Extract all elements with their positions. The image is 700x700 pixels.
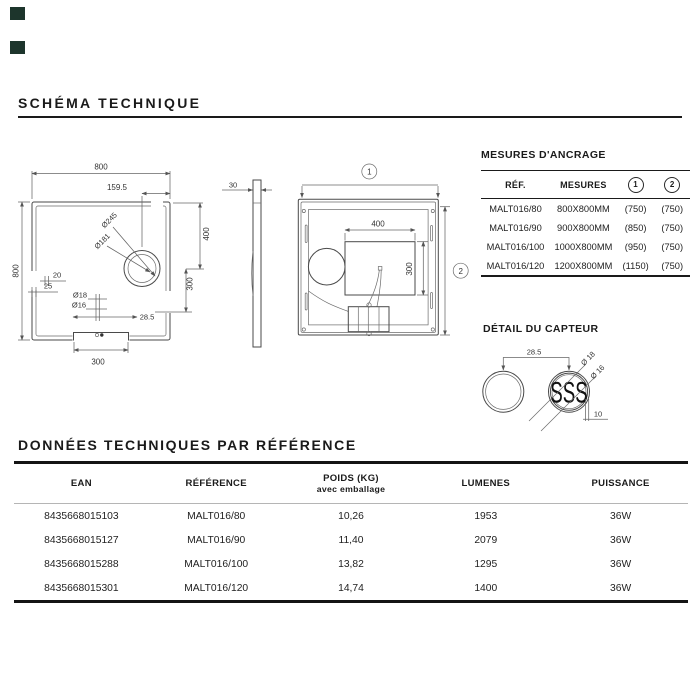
- cell-poids: 10,26: [284, 511, 419, 522]
- tech-table: EAN RÉFÉRENCE POIDS (KG) avec emballage …: [14, 461, 688, 603]
- cell-reference: MALT016/100: [149, 559, 284, 570]
- front-dim-height: 800: [12, 264, 21, 278]
- cell-reference: MALT016/120: [149, 583, 284, 594]
- front-dim-offset: 159.5: [107, 183, 128, 192]
- cell-ref: MALT016/90: [481, 223, 550, 233]
- col-mesures: MESURES: [550, 180, 617, 190]
- front-dim-25: 25: [44, 282, 52, 291]
- anchoring-row: MALT016/100 1000X800MM (950) (750): [481, 237, 690, 256]
- rear-callout-2: 2: [458, 267, 463, 276]
- rear-dim-400: 400: [371, 220, 385, 229]
- sensor-dim-depth: 10: [594, 410, 602, 419]
- cell-puissance: 36W: [553, 535, 688, 546]
- side-dim-thickness: 30: [229, 181, 237, 190]
- cell-lumens: 1400: [418, 583, 553, 594]
- cell-ref: MALT016/80: [481, 204, 550, 214]
- front-dim-d181: Ø181: [93, 232, 112, 251]
- col-poids: POIDS (KG) avec emballage: [284, 473, 419, 494]
- tech-row: 8435668015301 MALT016/120 14,74 1400 36W: [14, 576, 688, 600]
- col-reference: RÉFÉRENCE: [149, 478, 284, 489]
- cell-ref: MALT016/100: [481, 242, 550, 252]
- cell-v2: (750): [654, 223, 690, 233]
- front-dim-d18: Ø18: [73, 291, 87, 300]
- cell-ean: 8435668015301: [14, 583, 149, 594]
- cell-ean: 8435668015127: [14, 535, 149, 546]
- front-dim-d16: Ø16: [72, 301, 86, 310]
- cell-ean: 8435668015288: [14, 559, 149, 570]
- cell-ean: 8435668015103: [14, 511, 149, 522]
- front-dim-300-bottom: 300: [91, 358, 105, 367]
- col-lumens: LUMENES: [418, 478, 553, 489]
- anchoring-title: MESURES D'ANCRAGE: [481, 149, 690, 161]
- rear-callout-1: 1: [367, 168, 372, 177]
- anchoring-table: RÉF. MESURES 1 2 MALT016/80 800X800MM (7…: [481, 170, 690, 277]
- front-dim-width: 800: [94, 163, 108, 172]
- front-view-drawing: 800 159.5 800 20 25 Ø245 Ø181 400 300: [12, 163, 212, 367]
- circled-1-icon: 1: [628, 177, 644, 193]
- tech-row: 8435668015288 MALT016/100 13,82 1295 36W: [14, 552, 688, 576]
- cell-v1: (950): [617, 242, 655, 252]
- anchoring-row: MALT016/90 900X800MM (850) (750): [481, 218, 690, 237]
- anchoring-row: MALT016/80 800X800MM (750) (750): [481, 199, 690, 218]
- tech-section-title: DONNÉES TECHNIQUES PAR RÉFÉRENCE: [18, 437, 357, 453]
- cell-v1: (750): [617, 204, 655, 214]
- sensor-dim-spacing: 28.5: [527, 348, 542, 357]
- sensor-detail-title: DÉTAIL DU CAPTEUR: [483, 323, 599, 335]
- col-ref: RÉF.: [481, 180, 550, 190]
- cell-lumens: 1295: [418, 559, 553, 570]
- sensor-dim-d18: Ø 18: [579, 350, 597, 368]
- circled-2-icon: 2: [664, 177, 680, 193]
- front-dim-20: 20: [53, 271, 61, 280]
- rear-view-drawing: 1 400 300 2: [298, 164, 468, 336]
- cell-v1: (850): [617, 223, 655, 233]
- side-view-drawing: 30: [222, 180, 272, 347]
- cell-puissance: 36W: [553, 511, 688, 522]
- cell-mesures: 900X800MM: [550, 223, 617, 233]
- cell-poids: 11,40: [284, 535, 419, 546]
- rear-dim-300: 300: [405, 262, 414, 276]
- cell-poids: 13,82: [284, 559, 419, 570]
- anchoring-row: MALT016/120 1200X800MM (1150) (750): [481, 256, 690, 275]
- front-dim-d245: Ø245: [100, 211, 119, 230]
- cell-poids: 14,74: [284, 583, 419, 594]
- cell-v1: (1150): [617, 261, 655, 271]
- anchoring-table-header: RÉF. MESURES 1 2: [481, 171, 690, 199]
- front-dim-400: 400: [202, 227, 211, 241]
- tech-row: 8435668015127 MALT016/90 11,40 2079 36W: [14, 528, 688, 552]
- cell-v2: (750): [654, 261, 690, 271]
- cell-ref: MALT016/120: [481, 261, 550, 271]
- tech-table-header: EAN RÉFÉRENCE POIDS (KG) avec emballage …: [14, 464, 688, 504]
- col-poids-line1: POIDS (KG): [323, 473, 379, 484]
- cell-mesures: 800X800MM: [550, 204, 617, 214]
- cell-lumens: 2079: [418, 535, 553, 546]
- cell-v2: (750): [654, 242, 690, 252]
- anchoring-panel: MESURES D'ANCRAGE RÉF. MESURES 1 2 MALT0…: [481, 149, 690, 277]
- sensor-dim-d16: Ø 16: [589, 363, 607, 381]
- front-dim-285: 28.5: [140, 313, 155, 322]
- cell-lumens: 1953: [418, 511, 553, 522]
- sensor-detail-drawing: 28.5 SSS Ø 18 Ø 16 10: [483, 348, 608, 432]
- datasheet-page: { "page": { "corner_marks_color": "#1d35…: [0, 0, 700, 700]
- cell-mesures: 1200X800MM: [550, 261, 617, 271]
- tech-row: 8435668015103 MALT016/80 10,26 1953 36W: [14, 504, 688, 528]
- col-ean: EAN: [14, 478, 149, 489]
- cell-reference: MALT016/90: [149, 535, 284, 546]
- cell-puissance: 36W: [553, 559, 688, 570]
- front-dim-300-right: 300: [186, 277, 195, 291]
- cell-puissance: 36W: [553, 583, 688, 594]
- cell-reference: MALT016/80: [149, 511, 284, 522]
- cell-v2: (750): [654, 204, 690, 214]
- col-poids-line2: avec emballage: [284, 484, 419, 494]
- col-puissance: PUISSANCE: [553, 478, 688, 489]
- cell-mesures: 1000X800MM: [550, 242, 617, 252]
